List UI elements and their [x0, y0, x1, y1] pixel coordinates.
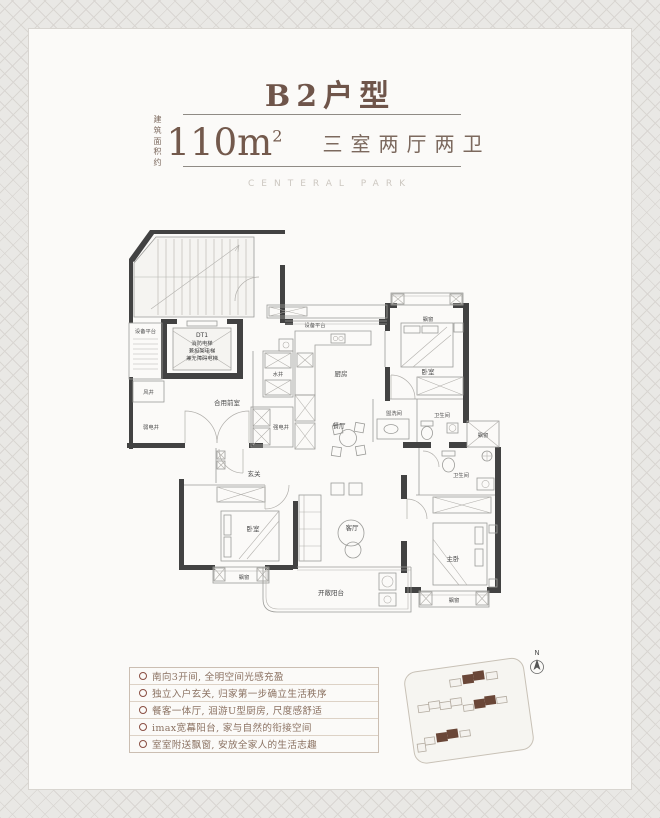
- room-label-bath-lower: 卫生间: [453, 471, 469, 479]
- room-label-bay-bottom-right: 飘窗: [449, 596, 460, 604]
- feature-item: 独立入户玄关, 归家第一步确立生活秩序: [130, 685, 378, 702]
- room-label-living: 客厅: [346, 523, 360, 532]
- room-label-equip-left: 设备平台: [135, 327, 156, 335]
- layout-spec: 三室两厅两卫: [322, 128, 490, 157]
- living-room: 客厅: [297, 483, 411, 570]
- room-label-weak-elec: 弱电井: [143, 423, 159, 431]
- room-label-water-shaft: 水井: [273, 370, 284, 378]
- room-label-bay-top-right: 飘窗: [423, 315, 434, 323]
- area-prefix: 建 筑 面积约: [154, 115, 164, 169]
- room-label-shared-lobby: 合用前室: [214, 398, 241, 407]
- highlighted-building: [446, 729, 458, 739]
- site-buildings: [403, 657, 535, 765]
- highlighted-building: [474, 698, 486, 708]
- bath-zone-lower: 卫生间: [407, 448, 495, 519]
- room-label-wind-shaft: 风井: [143, 388, 154, 396]
- svg-text:兼无障碍电梯: 兼无障碍电梯: [186, 354, 218, 362]
- content-card: B2户型 建 筑 面积约 110m2 三室两厅两卫 CENTERAL PARK: [28, 28, 632, 790]
- room-label-master: 主卧: [447, 554, 461, 563]
- room-label-balcony: 开敞阳台: [318, 588, 344, 597]
- highlighted-building: [436, 732, 448, 742]
- area-value: 110m2: [167, 124, 283, 161]
- features-list: 南向3开间, 全明空间光感充盈 独立入户玄关, 归家第一步确立生活秩序 餐客一体…: [129, 667, 379, 753]
- feature-item: 室室附送飘窗, 安放全家人的生活志趣: [130, 736, 378, 752]
- bullet-circle-icon: [139, 672, 147, 680]
- unit-title: B2户型: [29, 71, 631, 115]
- svg-text:N: N: [534, 649, 539, 657]
- room-label-dining: 餐厅: [333, 421, 347, 430]
- svg-text:DT1: DT1: [196, 332, 208, 339]
- title-divider-bottom: [183, 166, 461, 167]
- highlighted-building: [473, 670, 485, 680]
- room-label-bedroom-top-right: 卧室: [422, 367, 436, 376]
- room-label-kitchen: 厨房: [335, 369, 348, 378]
- feature-text: imax宽幕阳台, 家与自然的衔接空间: [152, 720, 312, 734]
- room-label-bay-right: 飘窗: [478, 431, 489, 439]
- feature-text: 独立入户玄关, 归家第一步确立生活秩序: [152, 686, 327, 700]
- room-label-equip-top: 设备平台: [304, 321, 325, 329]
- area-spec: 建 筑 面积约 110m2 三室两厅两卫: [183, 119, 461, 165]
- bullet-circle-icon: [139, 740, 147, 748]
- feature-text: 南向3开间, 全明空间光感充盈: [152, 669, 284, 683]
- bath-zone-upper: 盥洗间 卫生间 飘窗: [373, 399, 499, 447]
- floor-plan: DT1 消防电梯 兼担架电梯 兼无障碍电梯 设备平台 风井 弱电井: [116, 223, 536, 627]
- highlighted-building: [462, 674, 474, 684]
- bullet-circle-icon: [139, 723, 147, 731]
- bullet-circle-icon: [139, 689, 147, 697]
- site-plan: N: [401, 639, 551, 769]
- feature-item: imax宽幕阳台, 家与自然的衔接空间: [130, 719, 378, 736]
- bullet-circle-icon: [139, 706, 147, 714]
- page-background: B2户型 建 筑 面积约 110m2 三室两厅两卫 CENTERAL PARK: [0, 0, 660, 818]
- feature-item: 南向3开间, 全明空间光感充盈: [130, 668, 378, 685]
- balcony: 开敞阳台: [263, 567, 411, 612]
- elevator: DT1 消防电梯 兼担架电梯 兼无障碍电梯: [173, 321, 231, 370]
- watermark: CENTERAL PARK: [29, 179, 631, 189]
- highlighted-building: [484, 695, 496, 705]
- room-label-foyer: 玄关: [248, 469, 262, 478]
- room-label-washroom: 盥洗间: [386, 409, 402, 417]
- svg-text:消防电梯: 消防电梯: [191, 339, 213, 347]
- title-divider-top: [183, 114, 461, 115]
- room-label-bedroom-bottom-left: 卧室: [247, 524, 261, 533]
- feature-text: 餐客一体厅, 洄游U型厨房, 尺度感舒适: [152, 703, 322, 717]
- room-label-bay-bottom-left: 飘窗: [239, 573, 250, 581]
- feature-text: 室室附送飘窗, 安放全家人的生活志趣: [152, 737, 317, 751]
- room-label-bath-upper: 卫生间: [434, 411, 450, 419]
- feature-item: 餐客一体厅, 洄游U型厨房, 尺度感舒适: [130, 702, 378, 719]
- master-bedroom: 主卧 飘窗: [419, 497, 497, 607]
- room-label-strong-elec: 强电井: [273, 423, 289, 431]
- bedroom-top-right: 飘窗 卧室: [391, 293, 463, 399]
- kitchen-zone: 设备平台 厨房 餐厅: [267, 305, 387, 457]
- svg-text:兼担架电梯: 兼担架电梯: [189, 347, 216, 355]
- north-indicator: N: [531, 649, 544, 674]
